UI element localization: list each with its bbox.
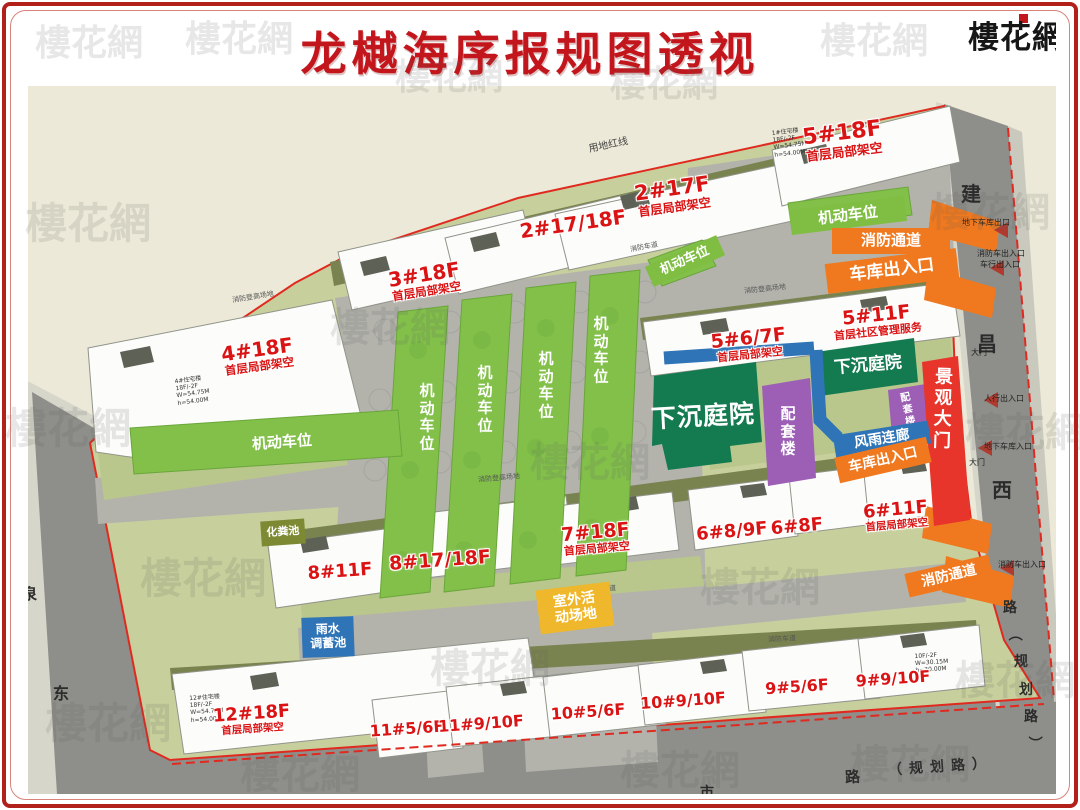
site-plan-image: 龙樾海序报规图透视 樓花網 5#18F首层局部架空 2#17F首层局部架空 2#… [0,0,1080,810]
parking-tag-strip1: 机动车位 [419,383,436,454]
road-east-char-4: 路 [1003,597,1017,617]
mark-pedestrian: 人行出入口 [984,393,1024,404]
building-note-4: 4#住宅楼 18F/-2F W=54.75M h=54.00M [174,374,211,407]
page-title: 龙樾海序报规图透视 [301,18,760,84]
building-label-6-11f: 6#11F首层局部架空 [862,497,929,534]
mark-fire-entrance: 消防车出入口 [977,248,1025,259]
road-east-char-9: ） [1025,736,1045,750]
septic-tank-tag: 化粪池 [260,518,306,546]
mark-garage-exit: 地下车库出口 [962,217,1010,228]
bottom-margin [0,794,1080,810]
parking-tag-strip2: 机动车位 [477,365,494,436]
road-east-char-7: 划 [1019,679,1033,699]
parking-tag-strip3: 机动车位 [538,351,555,422]
road-east-char-1: 建 [961,178,981,207]
road-east-char-3: 西 [992,474,1012,503]
site-logo: 樓花網 [968,12,1064,57]
left-margin [0,0,28,810]
mark-fire-road-3: 消防车道 [768,633,796,644]
right-margin [1056,0,1080,810]
rain-tank-tag: 雨水调蓄池 [301,616,354,658]
mark-garage-in: 地下车库入口 [984,441,1032,452]
mark-gate-2: 大门 [969,457,985,468]
road-east-char-8: 路 [1024,706,1038,726]
road-east-char-5: （ [1005,627,1025,641]
road-east-char-6: 规 [1014,651,1028,671]
mark-gate-1: 大门 [971,347,987,358]
mark-vehicle-entrance: 车行出入口 [980,259,1020,270]
building-label-12-18f: 12#18F首层局部架空 [212,701,292,738]
landscape-gate-tag: 景观大门 [931,366,954,452]
building-label-7-18f: 7#18F首层局部架空 [560,519,631,558]
parking-tag-strip4: 机动车位 [593,316,610,387]
sunken-courtyard-tag-main: 下沉庭院 [650,400,755,434]
mark-fire-exit: 消防车出入口 [998,559,1046,570]
outdoor-activity-tag: 室外活动场地 [536,582,615,635]
road-west-char-2: 东 [53,680,69,704]
support-building-tag-main: 配套楼 [780,405,797,458]
road-south-char: 路 [844,766,860,788]
